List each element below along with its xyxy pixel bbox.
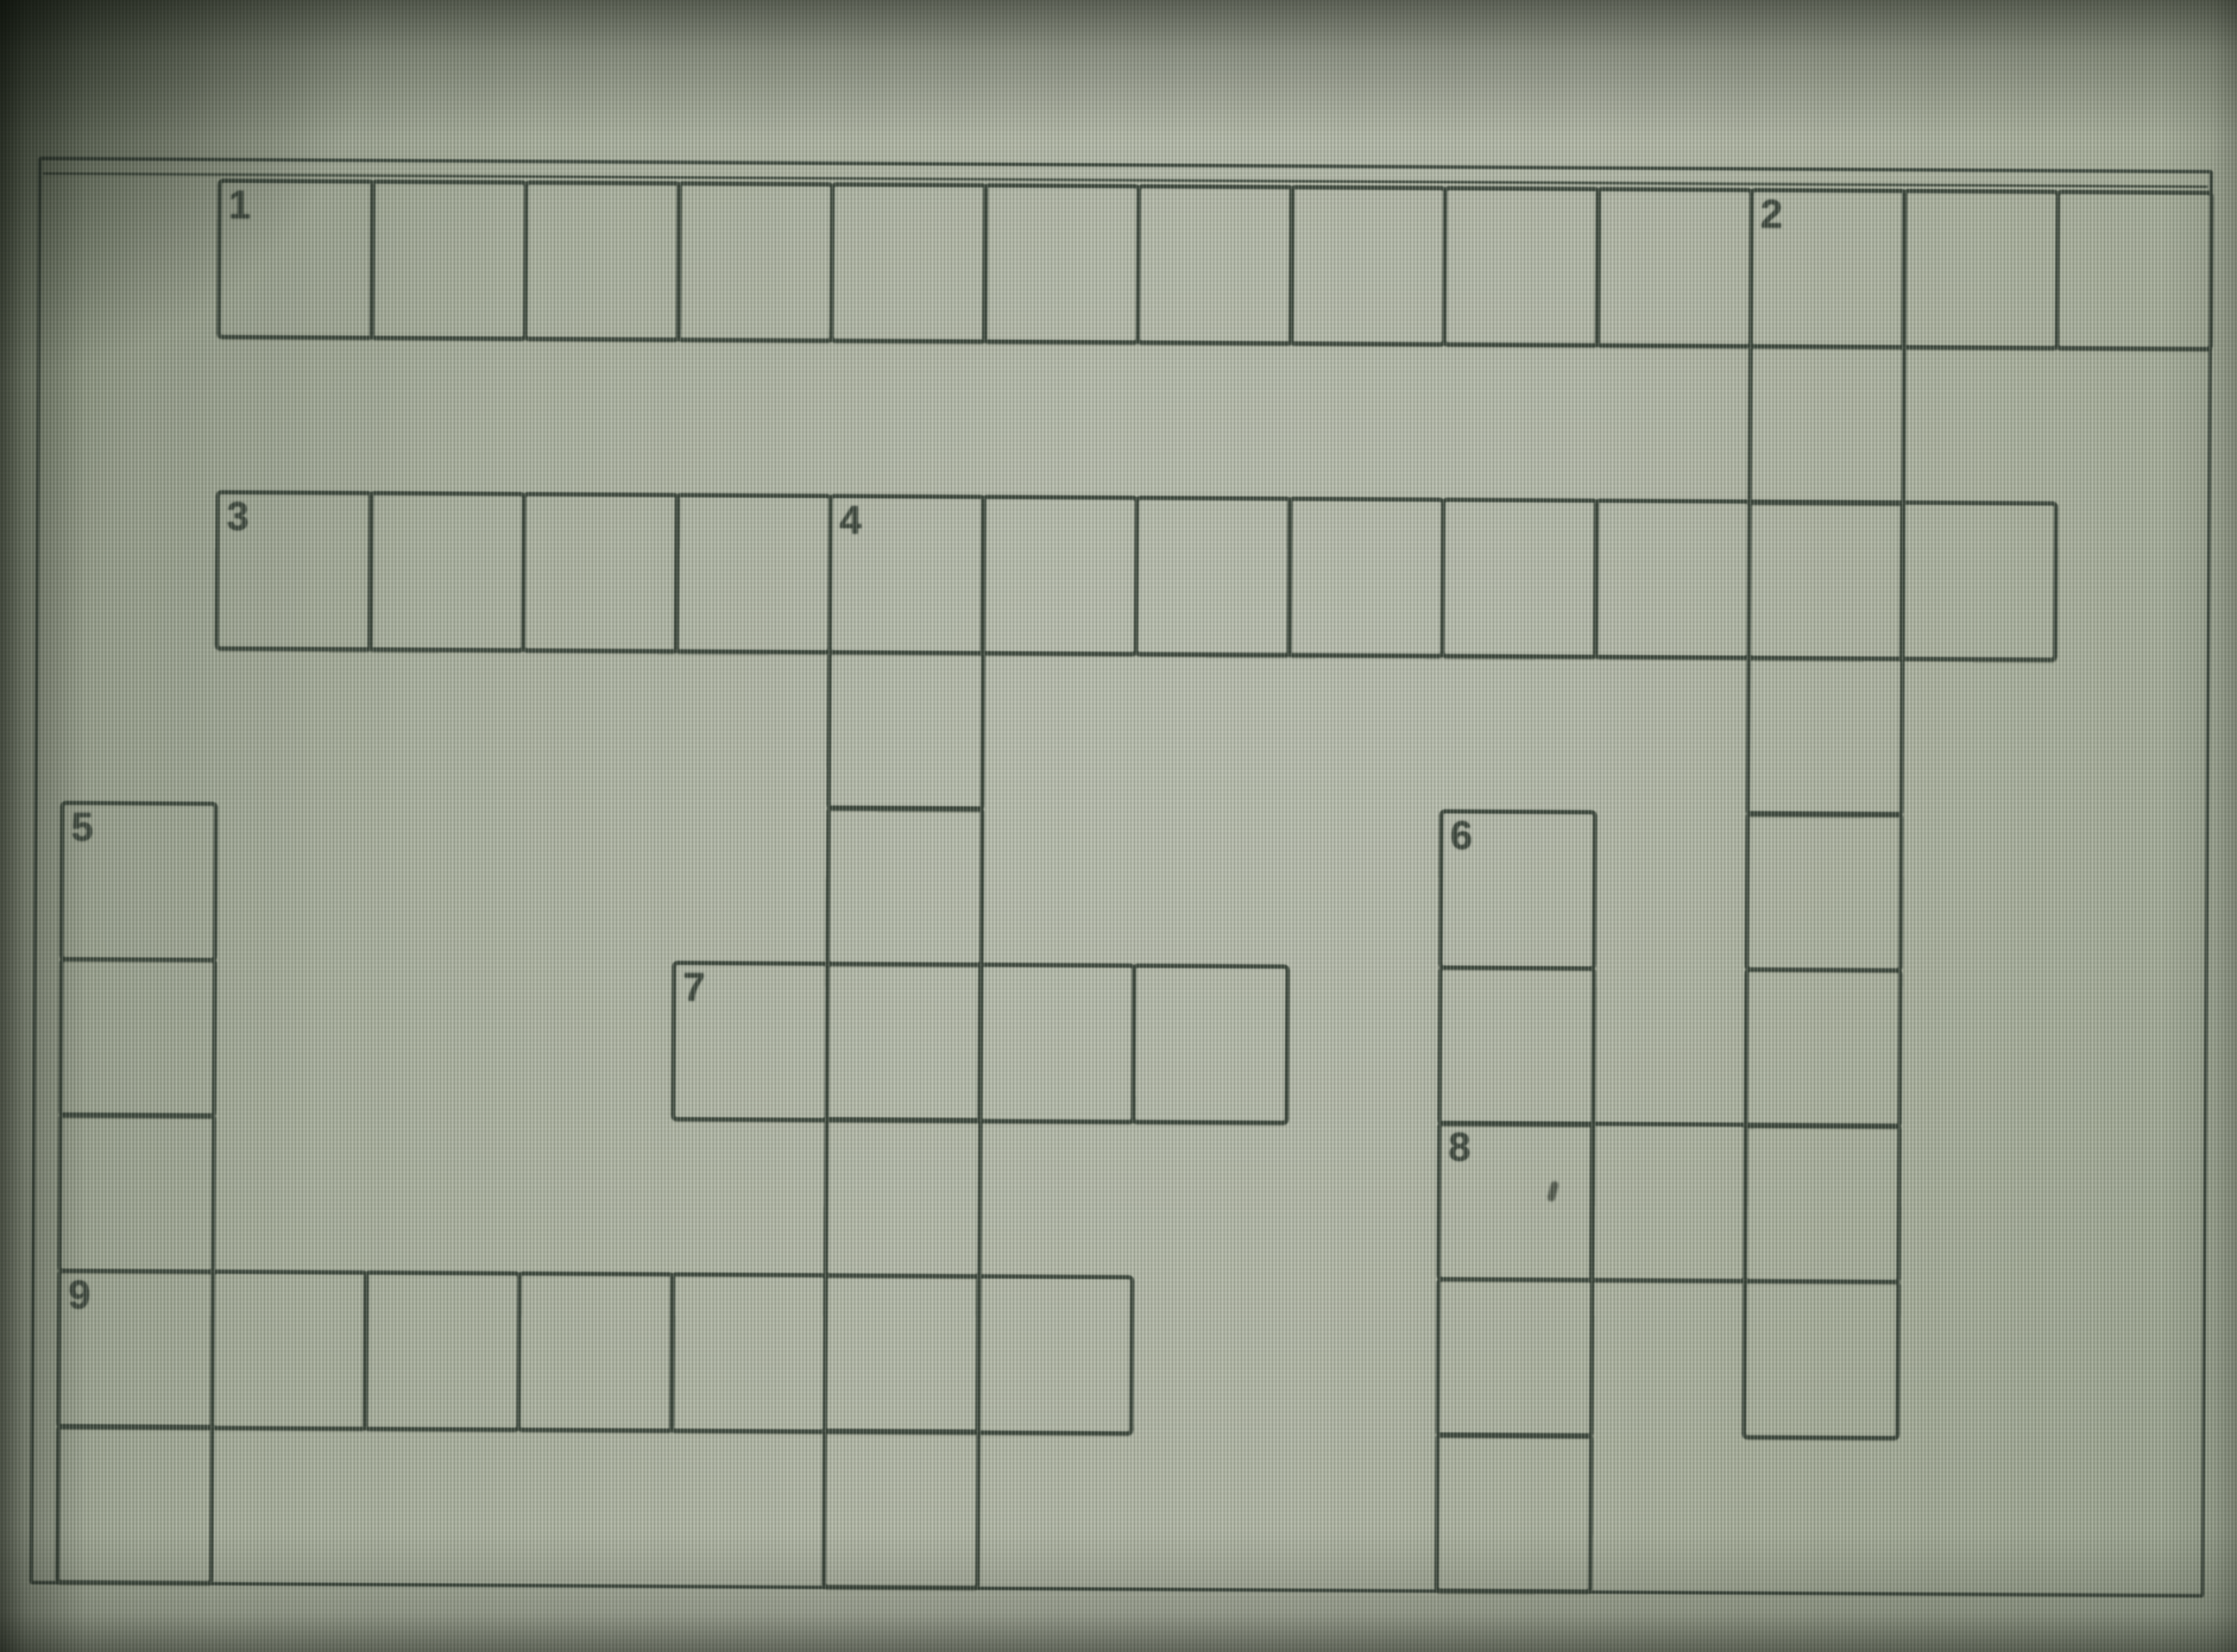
- crossword-cell[interactable]: [1289, 185, 1447, 346]
- crossword-cell[interactable]: [369, 180, 528, 341]
- crossword-cell[interactable]: 7: [671, 961, 829, 1122]
- crossword-cell[interactable]: [210, 1270, 369, 1431]
- crossword-cell[interactable]: 5: [60, 801, 218, 962]
- crossword-cell[interactable]: [368, 491, 526, 653]
- crossword-cell[interactable]: [58, 957, 217, 1119]
- screen-photo: 123459687: [0, 0, 2237, 1652]
- clue-number: 5: [71, 806, 93, 848]
- clue-number: 8: [1448, 1126, 1471, 1168]
- crossword-cell[interactable]: [1131, 963, 1289, 1125]
- crossword-cell[interactable]: [1742, 1123, 1901, 1284]
- crossword-cell[interactable]: [982, 183, 1141, 344]
- clue-number: 1: [229, 184, 251, 225]
- crossword-cell[interactable]: [822, 1273, 981, 1434]
- crossword-cell[interactable]: 9: [56, 1269, 215, 1430]
- crossword-cell[interactable]: [1745, 811, 1904, 973]
- crossword-cell[interactable]: [1901, 189, 2060, 350]
- crossword-cell[interactable]: [516, 1271, 675, 1433]
- crossword-cell[interactable]: [2055, 190, 2214, 351]
- crossword-cell[interactable]: [57, 1113, 216, 1274]
- crossword-cell[interactable]: [55, 1424, 214, 1586]
- clue-number: 4: [840, 499, 862, 540]
- crossword-cell[interactable]: [1742, 1279, 1900, 1441]
- crossword-cell[interactable]: [1743, 968, 1902, 1129]
- crossword-cell[interactable]: 4: [828, 494, 986, 655]
- crossword-cell[interactable]: [1136, 184, 1295, 345]
- crossword-cell[interactable]: [1748, 344, 1906, 506]
- crossword-cell[interactable]: [980, 495, 1139, 656]
- crossword-cell[interactable]: 6: [1439, 809, 1597, 970]
- crossword-cell[interactable]: 8: [1436, 1120, 1595, 1282]
- crossword-cell[interactable]: [1900, 501, 2058, 662]
- clue-number: 2: [1761, 193, 1783, 235]
- crossword-cell[interactable]: [829, 182, 988, 344]
- crossword-cell[interactable]: [822, 1428, 980, 1590]
- crossword-cell[interactable]: [669, 1272, 828, 1434]
- crossword-cell[interactable]: [1434, 1432, 1593, 1593]
- crossword-cell[interactable]: [823, 1117, 982, 1278]
- puzzle-board: 123459687: [0, 0, 2237, 1652]
- crossword-cell[interactable]: [1747, 500, 1906, 661]
- crossword-cell[interactable]: [523, 180, 682, 342]
- crossword-cell[interactable]: [1746, 656, 1905, 817]
- crossword-cell[interactable]: [1442, 186, 1601, 347]
- crossword-cell[interactable]: [1435, 1277, 1594, 1438]
- clue-number: 6: [1450, 815, 1472, 856]
- clue-number: 9: [68, 1274, 91, 1315]
- crossword-cell[interactable]: [1589, 1122, 1748, 1283]
- crossword-cell[interactable]: 2: [1749, 188, 1907, 350]
- clue-number: 3: [227, 495, 249, 537]
- crossword-cell[interactable]: [827, 650, 986, 811]
- crossword-cell[interactable]: [1595, 187, 1754, 349]
- crossword-cell[interactable]: 3: [215, 490, 374, 652]
- crossword-cell[interactable]: [1287, 496, 1446, 658]
- crossword-cell[interactable]: [521, 492, 680, 653]
- clue-number: 7: [683, 966, 705, 1007]
- crossword-cell[interactable]: 1: [217, 179, 375, 340]
- crossword-cell[interactable]: [977, 962, 1136, 1124]
- crossword-cell[interactable]: [674, 493, 833, 654]
- crossword-cell[interactable]: [362, 1271, 521, 1432]
- crossword-cell[interactable]: [1593, 499, 1752, 660]
- crossword-cell[interactable]: [1437, 965, 1596, 1126]
- crossword-cell[interactable]: [826, 805, 985, 967]
- crossword-cell[interactable]: [1134, 495, 1293, 657]
- crossword-cell[interactable]: [1440, 497, 1599, 659]
- crossword-cell[interactable]: [975, 1274, 1134, 1435]
- crossword-cell[interactable]: [676, 181, 835, 343]
- crossword-cell[interactable]: [824, 962, 983, 1123]
